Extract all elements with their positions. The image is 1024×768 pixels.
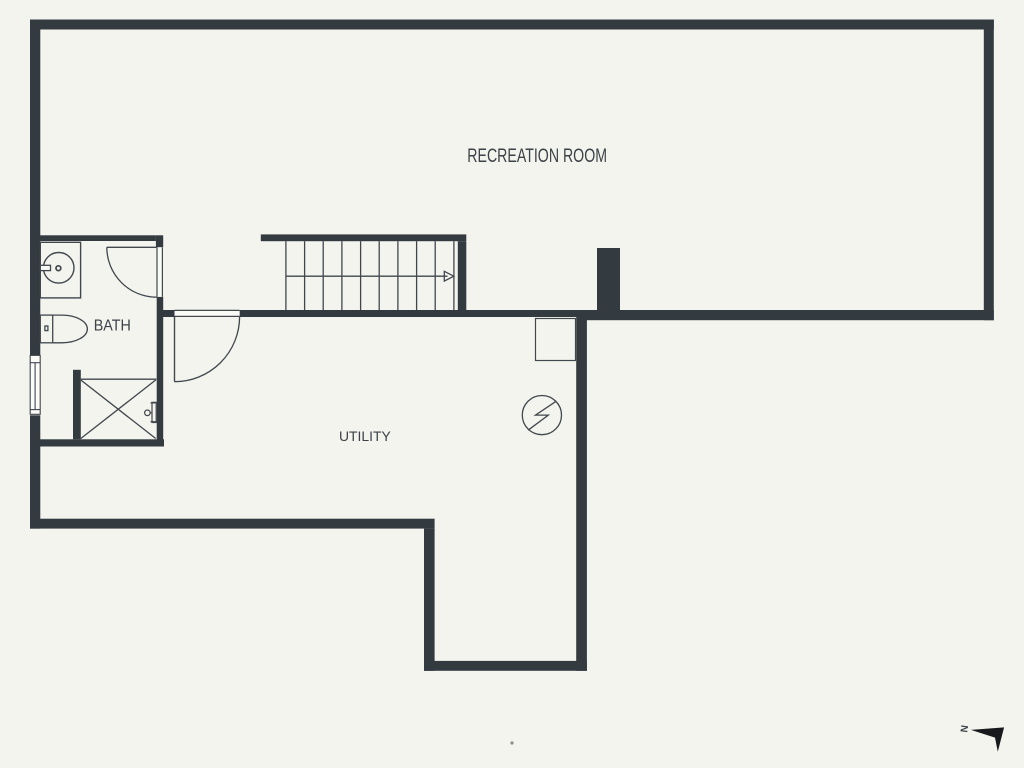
svg-text:BATH: BATH: [94, 317, 131, 334]
svg-text:UTILITY: UTILITY: [339, 429, 391, 445]
svg-text:RECREATION ROOM: RECREATION ROOM: [467, 145, 607, 167]
svg-text:N: N: [957, 724, 969, 733]
